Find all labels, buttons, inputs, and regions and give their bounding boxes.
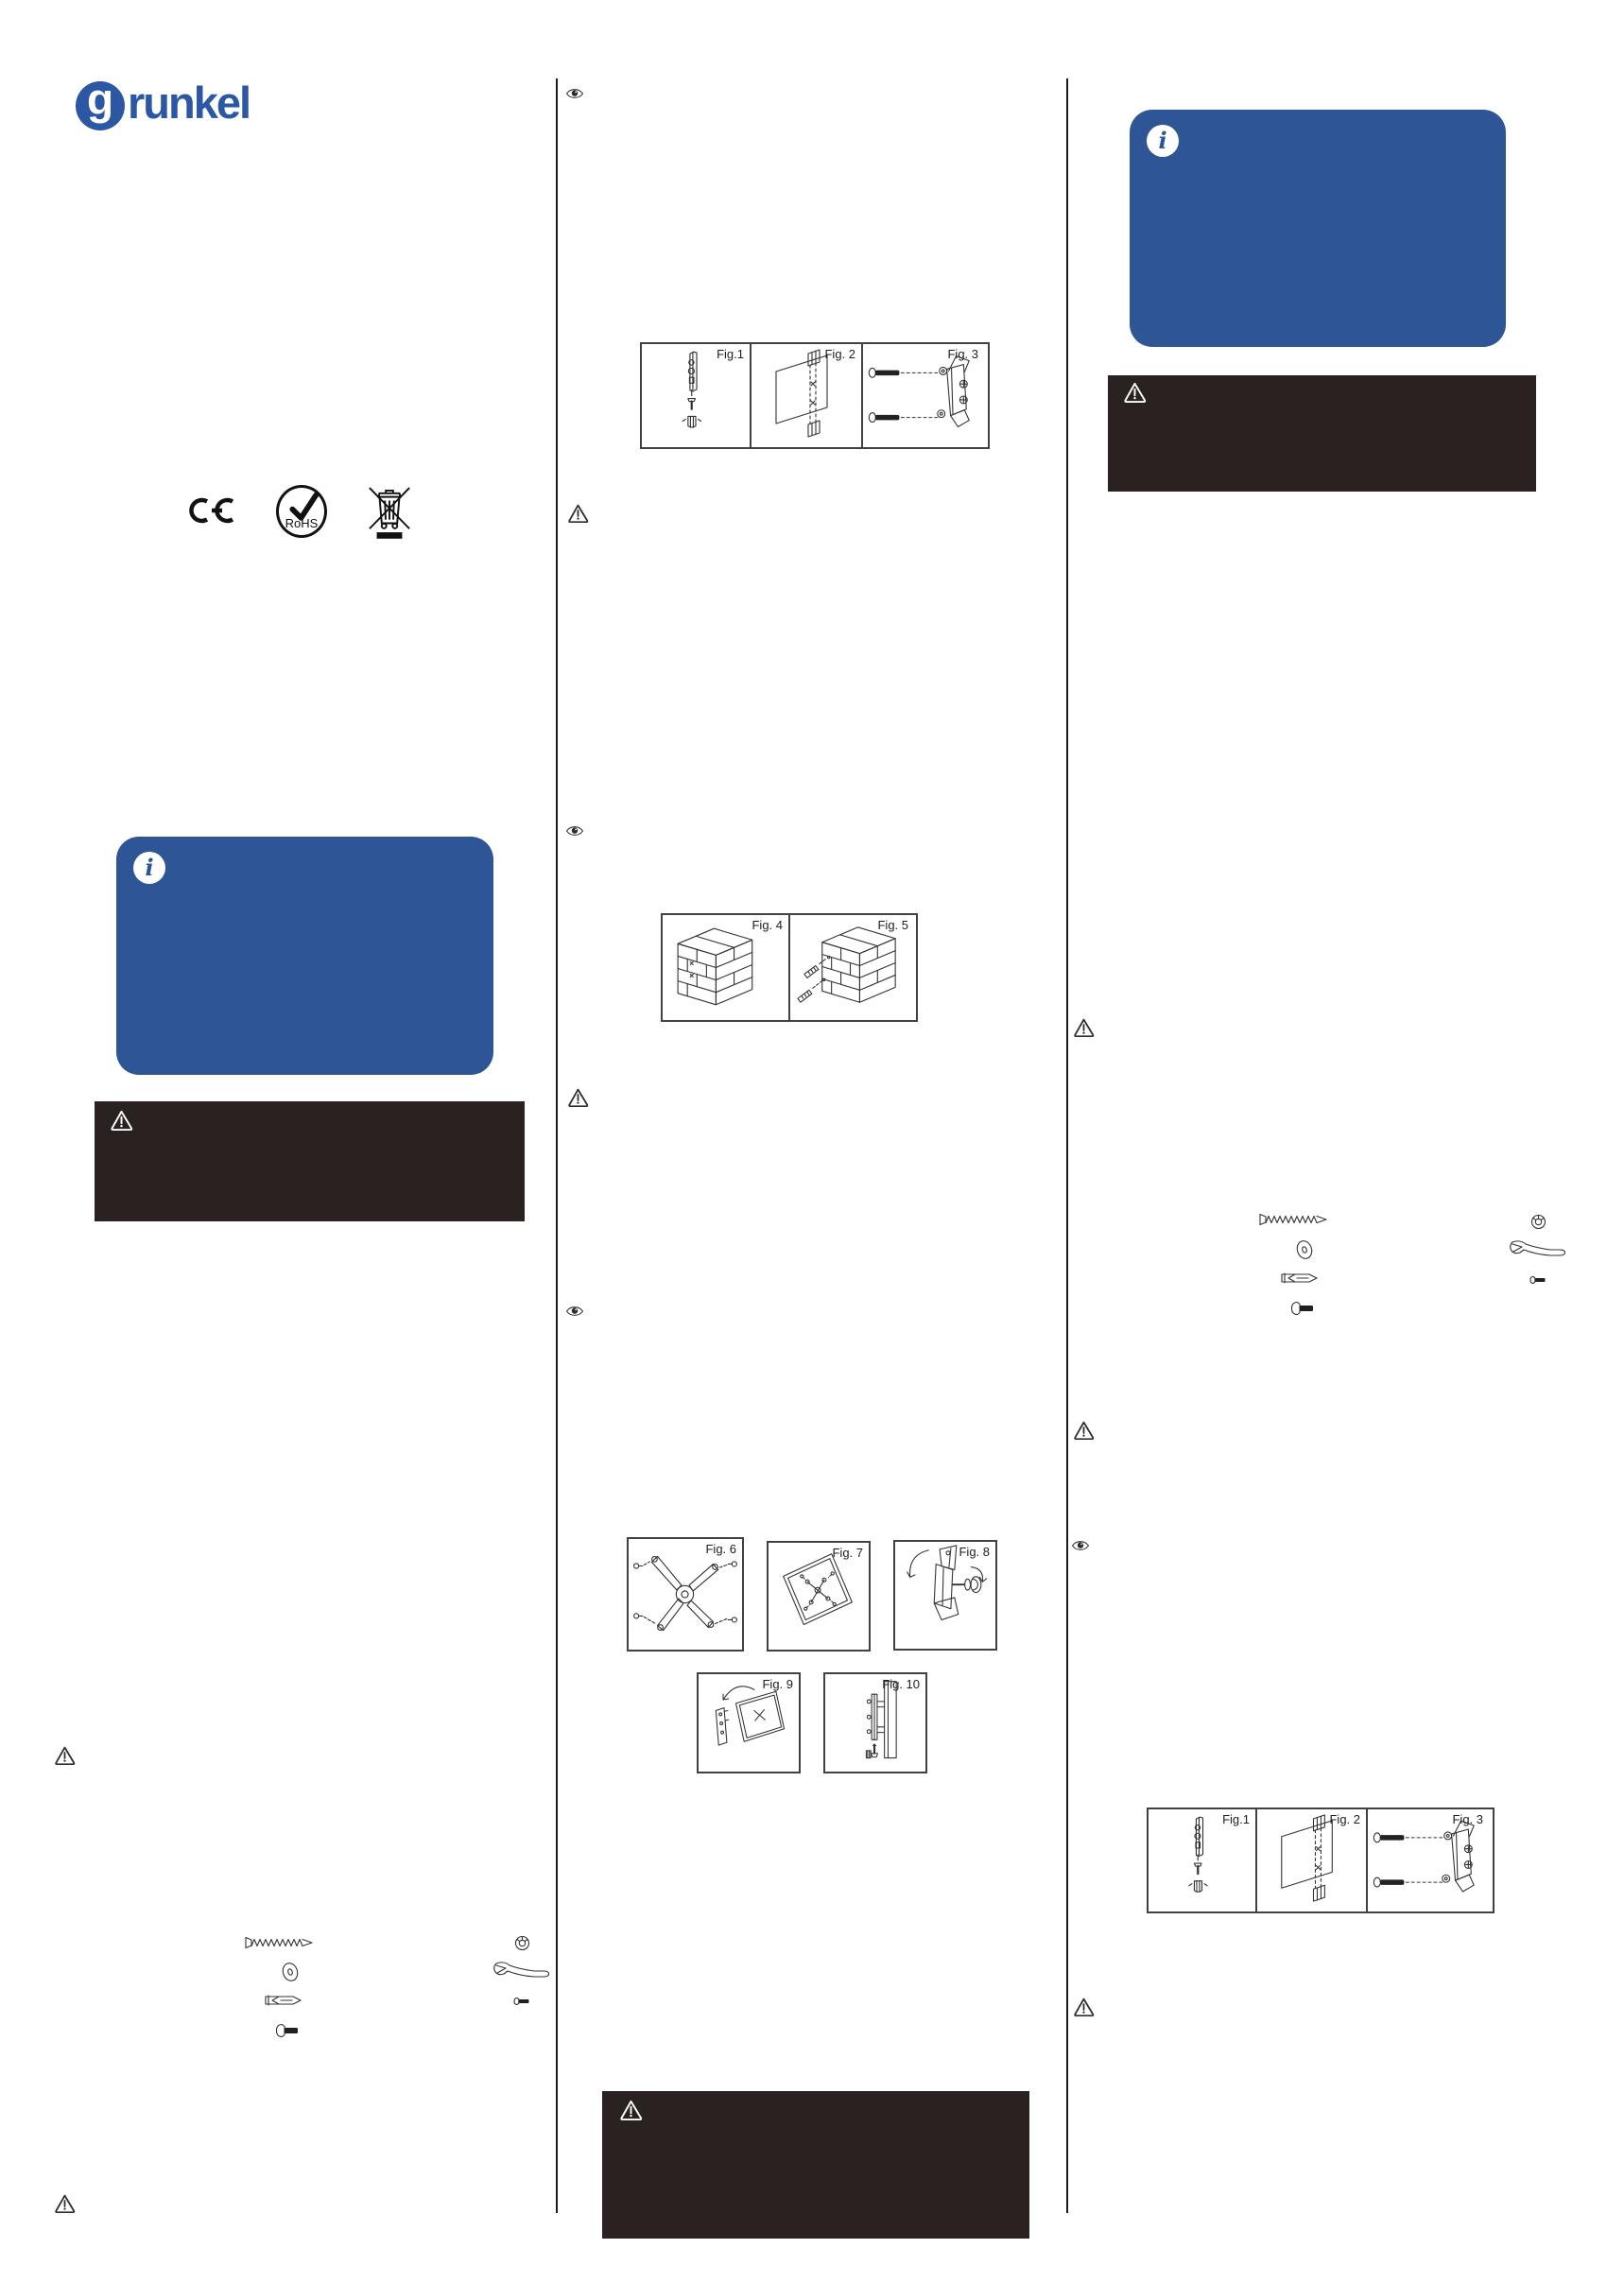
wall-anchor-icon: [261, 1993, 304, 2008]
logo-g-icon: g: [76, 81, 125, 130]
figure-label: Fig.1: [717, 347, 744, 361]
warning-triangle-icon: [54, 1745, 76, 1765]
figure-label: Fig. 3: [947, 347, 978, 361]
figure-label: Fig. 10: [882, 1677, 920, 1691]
bolt-icon: [274, 2023, 301, 2038]
washer-icon: [280, 1961, 301, 1983]
rohs-icon: RoHS: [276, 485, 327, 538]
figure-label: Fig. 3: [1452, 1812, 1483, 1826]
bolt-icon: [1289, 1301, 1316, 1316]
figure-panel: Fig. 3: [861, 344, 984, 447]
figure-label: Fig. 6: [705, 1542, 736, 1556]
figure-box-4-5: Fig. 4 Fig. 5: [661, 913, 918, 1022]
column-divider-left: [556, 78, 558, 2213]
warning-triangle-icon: [54, 2193, 76, 2213]
warning-triangle-icon: [1073, 1997, 1095, 2016]
small-bolt-icon: [513, 1997, 530, 2006]
eye-icon: [1071, 1539, 1090, 1552]
warning-box: [602, 2091, 1029, 2239]
figure-label: Fig. 9: [762, 1677, 793, 1691]
warning-triangle-icon: [110, 1109, 133, 1131]
info-box: i: [116, 837, 493, 1075]
figure-label: Fig. 4: [752, 918, 783, 932]
eye-icon: [565, 87, 584, 100]
figure-box-8: Fig. 8: [893, 1540, 997, 1651]
logo-wordmark: runkel: [128, 77, 250, 129]
info-glyph: i: [1158, 130, 1166, 152]
figure-label: Fig. 5: [877, 918, 908, 932]
grunkel-logo: g runkel: [76, 81, 250, 130]
figure-box-7: Fig. 7: [767, 1541, 871, 1652]
figure-label: Fig. 2: [824, 347, 855, 361]
long-screw-icon: [1258, 1213, 1332, 1226]
figure-label: Fig. 2: [1329, 1812, 1360, 1826]
warning-box: [1108, 375, 1536, 492]
warning-triangle-icon: [619, 2099, 643, 2120]
figure-label: Fig.1: [1222, 1812, 1250, 1826]
figure-panel: Fig. 2: [750, 344, 861, 447]
figure-box-6: Fig. 6: [627, 1537, 744, 1652]
figure-label: Fig. 7: [832, 1546, 863, 1560]
figure-box-9: Fig. 9: [697, 1672, 801, 1773]
weee-crossed-bin-icon: [367, 480, 412, 543]
eye-icon: [565, 824, 584, 838]
info-box: i: [1130, 110, 1506, 347]
warning-triangle-icon: [1073, 1420, 1095, 1440]
info-glyph: i: [145, 856, 153, 879]
info-icon: i: [1147, 125, 1179, 157]
rohs-label: RoHS: [279, 516, 324, 530]
figure-box-10: Fig. 10: [823, 1672, 927, 1773]
wrench-icon: [1508, 1237, 1570, 1263]
figure-box-1-3: Fig.1 Fig. 2: [640, 342, 990, 449]
figure-panel: Fig.1: [642, 344, 750, 447]
figure-panel: Fig. 5: [788, 915, 914, 1020]
figure-box-1-3-repeat: Fig.1 Fig. 2: [1147, 1807, 1494, 1913]
washer-icon: [1294, 1238, 1315, 1261]
column-divider-right: [1066, 78, 1068, 2213]
figure-panel: Fig. 2: [1255, 1809, 1366, 1911]
long-screw-icon: [244, 1936, 318, 1949]
manual-page: g runkel RoHS i: [0, 0, 1624, 2283]
wrench-icon: [492, 1958, 554, 1984]
ce-mark-icon: [185, 491, 234, 530]
figure-panel: Fig. 4: [663, 915, 788, 1020]
small-bolt-icon: [1529, 1275, 1546, 1285]
info-icon: i: [133, 852, 165, 884]
eye-icon: [565, 1305, 584, 1318]
warning-triangle-icon: [1123, 381, 1147, 403]
figure-label: Fig. 8: [959, 1545, 990, 1559]
warning-triangle-icon: [567, 1087, 589, 1107]
figure-panel: Fig.1: [1149, 1809, 1255, 1911]
wall-anchor-icon: [1277, 1271, 1321, 1286]
figure-panel: Fig. 3: [1366, 1809, 1489, 1911]
nut-icon: [514, 1935, 530, 1951]
nut-icon: [1530, 1214, 1546, 1230]
warning-triangle-icon: [1073, 1017, 1095, 1037]
warning-box: [95, 1101, 525, 1221]
warning-triangle-icon: [567, 503, 589, 523]
